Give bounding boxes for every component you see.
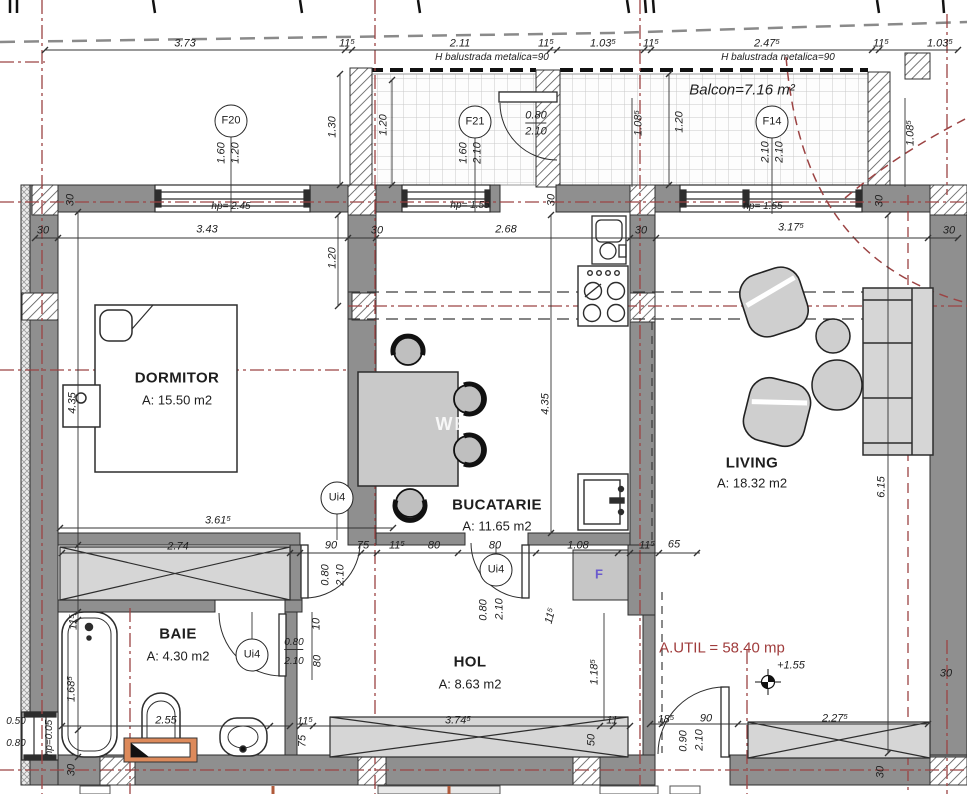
small-label: hp=0.05 <box>45 720 55 756</box>
marker-ui4: Ui4 <box>236 639 269 672</box>
small-label: H balustrada metalica=90 <box>721 53 835 63</box>
dim-label: 2.10 <box>495 598 506 619</box>
dim-label: +1.55 <box>777 661 805 672</box>
dim-label: 75 <box>298 735 309 747</box>
fridge-label: F <box>595 568 603 581</box>
dim-label: 75 <box>357 541 369 552</box>
dim-label: 11 <box>606 716 617 727</box>
dim-label: 80 <box>313 655 324 667</box>
floor-plan: 3.7311⁵2.1111⁵1.03⁵11⁵2.47⁵11⁵1.03⁵H bal… <box>0 0 967 794</box>
dim-label: 2.10 <box>336 564 347 585</box>
marker-f21: F21 <box>459 106 492 139</box>
small-label: hp= 2.45 <box>211 202 250 212</box>
dim-label: 30 <box>547 194 558 206</box>
dim-label: 1.60 <box>459 142 470 163</box>
dim-label: 4.35 <box>68 392 79 413</box>
dim-label: 10 <box>312 618 323 630</box>
area-label: A: 15.50 m2 <box>142 394 212 407</box>
dim-label: 30 <box>371 226 383 237</box>
dim-label: 0.80 <box>479 599 490 620</box>
dim-label: 1.20 <box>675 111 686 132</box>
dim-label: 4.35 <box>541 393 552 414</box>
dim-label: 2.47⁵ <box>754 39 780 50</box>
room-label-hol: HOL <box>454 655 487 670</box>
dim-label: 1.60 <box>217 142 228 163</box>
dim-label: 1.08 <box>567 541 588 552</box>
dim-label: 3.61⁵ <box>205 516 231 527</box>
area-label: A: 18.32 m2 <box>717 477 787 490</box>
dim-label: 2.10 <box>775 141 786 162</box>
room-label-living: LIVING <box>726 456 778 471</box>
room-label-bucatarie: BUCATARIE <box>452 498 542 513</box>
dim-label: 90 <box>325 541 337 552</box>
dim-label: 1.20 <box>231 142 242 163</box>
dim-label: 11⁵ <box>544 607 559 625</box>
marker-f20: F20 <box>215 105 248 138</box>
dim-label: 2.10 <box>525 127 546 138</box>
small-label: 0.80 <box>6 739 25 749</box>
dim-label: 80 <box>489 541 501 552</box>
dim-label: 0.80 <box>525 111 546 124</box>
dim-label: 11⁵ <box>339 39 355 50</box>
dim-label: 30 <box>940 669 952 680</box>
dim-label: 3.74⁵ <box>445 716 471 727</box>
area-label: A: 8.63 m2 <box>439 678 502 691</box>
dim-label: 50 <box>587 734 598 746</box>
dim-label: 11⁵ <box>69 614 80 630</box>
dim-label: 80 <box>428 541 440 552</box>
dim-label: 3.43 <box>196 225 217 236</box>
area-label: A: 4.30 m2 <box>147 650 210 663</box>
dim-label: 1.18⁵ <box>590 659 601 685</box>
dim-label: 2.27⁵ <box>822 714 848 725</box>
dim-label: 0.90 <box>679 730 690 751</box>
dim-label: 1.08⁵ <box>634 110 645 136</box>
dim-label: 2.74 <box>167 542 188 553</box>
dim-label: 11⁵ <box>643 39 659 50</box>
dim-label: 2.10 <box>761 141 772 162</box>
dim-label: 1.20 <box>379 114 390 135</box>
small-label: hp= 1.55 <box>743 202 782 212</box>
dim-label: 30 <box>67 764 78 776</box>
dim-label: 11⁵ <box>538 39 554 50</box>
marker-ui4: Ui4 <box>480 554 513 587</box>
dim-label: 1.30 <box>328 116 339 137</box>
dim-label: 30 <box>37 226 49 237</box>
balcony-label: Balcon=7.16 m² <box>689 83 794 98</box>
dim-label: 30 <box>66 194 77 206</box>
dim-label: 2.11 <box>450 39 471 50</box>
dim-label: 1.08⁵ <box>906 120 917 146</box>
marker-ui4: Ui4 <box>321 482 354 515</box>
small-label: 0.50 <box>6 717 25 727</box>
dim-label: 2.10 <box>473 142 484 163</box>
room-label-baie: BAIE <box>159 627 196 642</box>
room-label-dormitor: DORMITOR <box>135 371 220 386</box>
area-label: A: 11.65 m2 <box>462 520 531 533</box>
dim-label: 2.10 <box>695 729 706 750</box>
dim-label: 1.20 <box>328 247 339 268</box>
dim-label: 30 <box>943 226 955 237</box>
dim-label: 30 <box>876 766 887 778</box>
dim-label: 11⁵ <box>389 541 405 552</box>
small-label: H balustrada metalica=90 <box>435 53 549 63</box>
dim-label: 90 <box>700 714 712 725</box>
dim-label: 18⁵ <box>658 715 675 726</box>
dim-label: 6.15 <box>877 476 888 497</box>
small-label: 0.80 <box>284 638 303 650</box>
small-label: hp= 1.55 <box>450 201 489 211</box>
dim-label: 0.80 <box>321 564 332 585</box>
small-label: 2.10 <box>284 657 303 667</box>
dim-label: 11⁵ <box>639 541 655 552</box>
dim-label: 30 <box>875 195 886 207</box>
dim-label: 3.73 <box>174 39 195 50</box>
dim-label: 2.55 <box>155 716 176 727</box>
red-label: A.UTIL = 58.40 mp <box>659 641 785 656</box>
dim-label: 1.03⁵ <box>590 39 616 50</box>
dim-label: 65 <box>668 540 680 551</box>
dim-label: 11⁵ <box>297 717 313 728</box>
dim-label: 11⁵ <box>873 39 889 50</box>
dim-label: 2.68 <box>495 225 516 236</box>
dim-label: 1.03⁵ <box>927 39 953 50</box>
text-labels-layer: 3.7311⁵2.1111⁵1.03⁵11⁵2.47⁵11⁵1.03⁵H bal… <box>0 0 967 794</box>
dim-label: 3.17⁵ <box>778 223 804 234</box>
wm-label: WE <box>436 415 469 433</box>
dim-label: 1.68⁵ <box>67 676 78 702</box>
marker-f14: F14 <box>756 106 789 139</box>
dim-label: 30 <box>635 226 647 237</box>
